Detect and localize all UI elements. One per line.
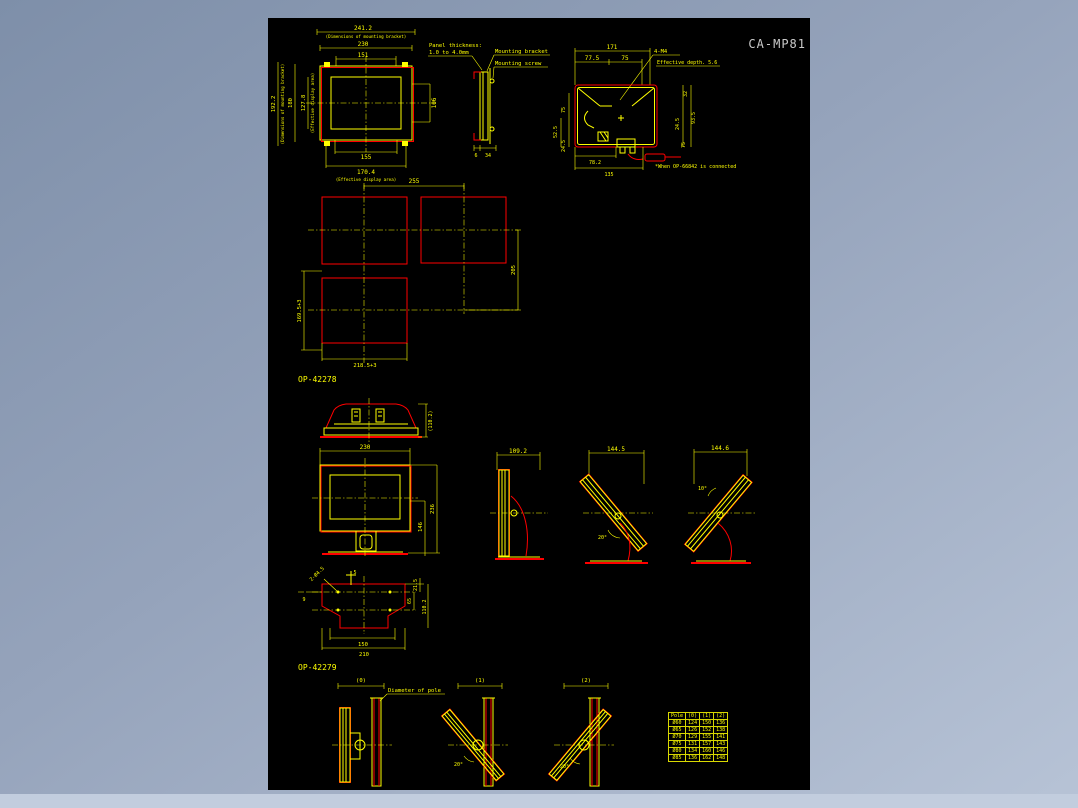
rear-view-note: *When OP-66842 is connected (655, 164, 736, 170)
view-tag: (0) (356, 678, 366, 684)
drawing-title: CA-MP81 (748, 37, 806, 51)
dim-label: 169.5+3 (297, 299, 303, 322)
dim-label: 78.2 (589, 160, 601, 166)
table-row: Ø85136162148 (669, 755, 728, 762)
cad-drawing-canvas[interactable]: CA-MP81 241.2 (Dimensions of mounting br… (268, 18, 810, 790)
table-header: (2) (714, 713, 728, 720)
table-cell: 131 (686, 741, 700, 748)
part-label: OP-42278 (298, 375, 337, 384)
mounting-bracket-label: Mounting bracket (495, 49, 548, 55)
table-cell: 141 (714, 734, 728, 741)
table-cell: Ø75 (669, 741, 686, 748)
dim-label: 230 (360, 444, 371, 451)
dim-label: 75 (621, 55, 629, 62)
plate-view: 2-Ø4.5 5 9 21.5 65 110.2 150 210 (298, 565, 428, 658)
table-cell: 155 (700, 734, 714, 741)
pole-dimension-table: Pole (0) (1) (2) Ø60124150136 Ø651261521… (668, 712, 728, 762)
dim-label: 151 (358, 52, 369, 59)
dim-note: (Effective display area) (310, 73, 315, 134)
cad-drawing-svg: CA-MP81 241.2 (Dimensions of mounting br… (268, 18, 810, 790)
cutout-view: 255 205 169.5+3 218.5+3 (297, 178, 521, 369)
dim-note: (Effective display area) (336, 177, 397, 182)
dim-label: 236 (430, 504, 436, 514)
panel-thickness-value: 1.0 to 4.0mm (429, 50, 469, 56)
table-header: Pole (669, 713, 686, 720)
dim-note: (Dimensions of mounting bracket) (326, 34, 407, 39)
dim-label: 155 (361, 154, 372, 161)
dim-label: 135 (604, 172, 613, 178)
dim-label: 110.2 (422, 599, 428, 614)
table-row: Ø70129155141 (669, 734, 728, 741)
dim-label: 75 (681, 142, 687, 148)
depth-label: Effective depth. 5.6 (657, 60, 717, 66)
dim-label: 180 (288, 98, 294, 108)
view-tag: (2) (581, 678, 591, 684)
table-header-row: Pole (0) (1) (2) (669, 713, 728, 720)
table-cell: 157 (700, 741, 714, 748)
dim-label: 6 (474, 153, 477, 159)
table-cell: 148 (714, 755, 728, 762)
table-row: Ø80134160146 (669, 748, 728, 755)
dim-label: 24.5 (561, 140, 567, 152)
dim-label: 218.5+3 (353, 363, 376, 369)
view-tag: (1) (475, 678, 485, 684)
op42279-view-2: (1) 20° (441, 678, 508, 786)
hole-callout: 2-Ø4.5 (308, 565, 326, 583)
table-cell: Ø65 (669, 727, 686, 734)
dim-label: 210 (359, 652, 369, 658)
stand-side-view-2: 144.5 20° (580, 446, 653, 563)
stand-side-view-1: 109.2 (490, 448, 548, 559)
dim-label: 52.5 (553, 126, 559, 138)
table-cell: 126 (686, 727, 700, 734)
angle-label: 10° (698, 486, 707, 492)
dim-label: 171 (607, 44, 618, 51)
table-row: Ø60124150136 (669, 720, 728, 727)
table-cell: Ø80 (669, 748, 686, 755)
table-cell: 162 (700, 755, 714, 762)
table-cell: 146 (714, 748, 728, 755)
dim-label: 75 (561, 107, 567, 113)
table-row: Ø65126152138 (669, 727, 728, 734)
angle-label: 20° (598, 535, 607, 541)
dim-label: 109.2 (509, 448, 527, 455)
rear-view: 171 77.5 75 4-M4 Effective depth. 5.6 75… (553, 44, 736, 178)
table-cell: 124 (686, 720, 700, 727)
dim-label: 5 (353, 570, 356, 576)
thread-label: 4-M4 (654, 49, 668, 55)
mounting-screw-label: Mounting screw (495, 61, 542, 67)
dim-label: 65 (407, 598, 413, 604)
table-cell: Ø85 (669, 755, 686, 762)
dim-label: 77.5 (585, 55, 600, 62)
dim-label: 32 (683, 91, 689, 97)
angle-label: 20° (560, 764, 569, 770)
dim-label: 21.5 (413, 579, 419, 591)
table-cell: 143 (714, 741, 728, 748)
dim-label: 127.8 (301, 95, 307, 112)
table-row: Ø75131157143 (669, 741, 728, 748)
op42279-view-1: OP-42279 (0) Diameter of pole (298, 663, 445, 786)
dim-label: 34 (485, 153, 491, 159)
dim-label: 230 (358, 41, 369, 48)
table-cell: Ø60 (669, 720, 686, 727)
table-header: (1) (700, 713, 714, 720)
dim-label: 106 (431, 97, 438, 108)
op42279-view-3: (2) 20° (548, 678, 614, 786)
dim-label: (110.2) (428, 410, 434, 431)
dim-label: 205 (511, 265, 517, 275)
dim-label: 146 (418, 522, 424, 532)
table-cell: 136 (714, 720, 728, 727)
table-cell: 150 (700, 720, 714, 727)
part-label: OP-42279 (298, 663, 337, 672)
dim-label: 192.2 (271, 96, 277, 113)
dim-label: 24.5 (675, 118, 681, 130)
stand-side-view-3: 144.6 10° (685, 445, 755, 563)
dim-note: (Dimensions of mounting bracket) (280, 64, 285, 145)
op42278-view: OP-42278 (110.2) (298, 375, 434, 442)
dim-label: 150 (358, 642, 368, 648)
dim-label: 241.2 (354, 25, 372, 32)
front-view: 241.2 (Dimensions of mounting bracket) 2… (271, 25, 438, 182)
table-cell: 138 (714, 727, 728, 734)
dim-label: 9 (302, 597, 305, 603)
dim-label: 93.5 (691, 112, 697, 124)
angle-label: 20° (454, 762, 463, 768)
dim-label: 144.6 (711, 445, 729, 452)
panel-thickness-label: Panel thickness: (429, 43, 482, 49)
background-bottom-strip (0, 794, 1078, 808)
table-cell: 160 (700, 748, 714, 755)
pole-diameter-note: Diameter of pole (388, 688, 441, 694)
stand-front-view: 230 146 236 (312, 444, 440, 558)
table-cell: 134 (686, 748, 700, 755)
table-cell: 136 (686, 755, 700, 762)
table-cell: 129 (686, 734, 700, 741)
table-cell: Ø70 (669, 734, 686, 741)
table-header: (0) (686, 713, 700, 720)
dim-label: 144.5 (607, 446, 625, 453)
side-view: Panel thickness: 1.0 to 4.0mm Mounting b… (428, 43, 550, 159)
dim-label: 255 (409, 178, 420, 185)
table-cell: 152 (700, 727, 714, 734)
dim-label: 170.4 (357, 169, 375, 176)
